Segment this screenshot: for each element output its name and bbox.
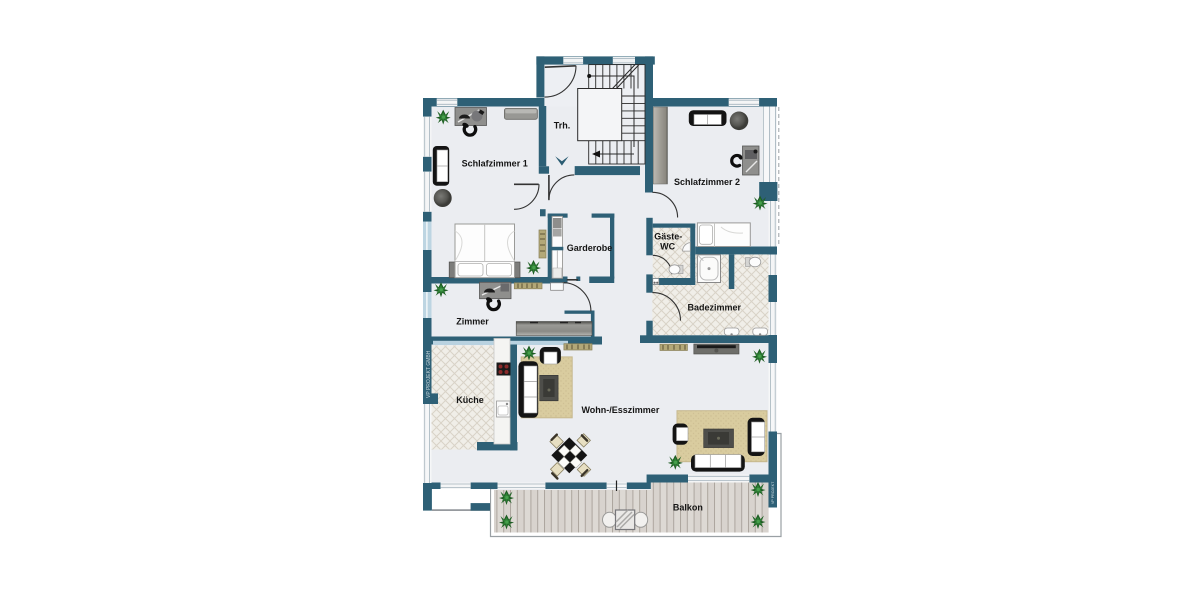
svg-text:Schlafzimmer 1: Schlafzimmer 1 [462,159,528,169]
svg-text:Schlafzimmer 2: Schlafzimmer 2 [674,177,740,187]
svg-text:WC: WC [660,241,675,251]
svg-text:Badezimmer: Badezimmer [688,303,742,313]
svg-text:Gäste-: Gäste- [654,231,682,241]
svg-text:VP PROJEKT GMBH: VP PROJEKT GMBH [426,350,432,398]
svg-text:Balkon: Balkon [673,503,703,513]
svg-text:Küche: Küche [456,395,484,405]
svg-text:Trh.: Trh. [554,121,571,131]
svg-text:Zimmer: Zimmer [456,317,489,327]
svg-text:Garderobe: Garderobe [567,243,613,253]
svg-text:Wohn-/Esszimmer: Wohn-/Esszimmer [581,405,659,415]
svg-text:VP PROJEKT: VP PROJEKT [771,481,775,504]
